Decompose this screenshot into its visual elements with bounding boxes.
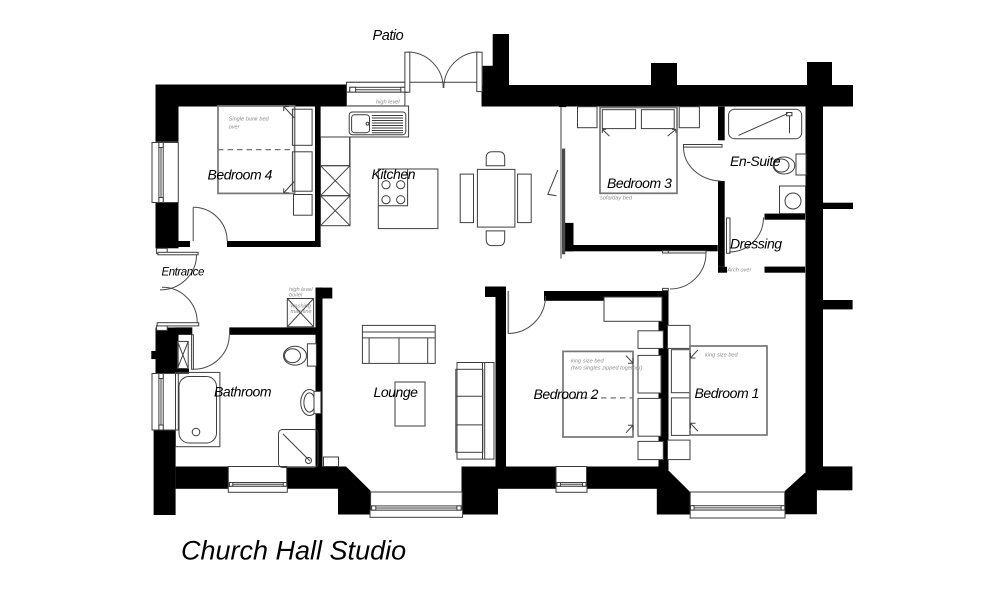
svg-text:Dressing: Dressing: [730, 236, 782, 252]
svg-text:king size bed: king size bed: [571, 359, 605, 365]
svg-text:over: over: [229, 125, 241, 131]
svg-text:Patio: Patio: [373, 28, 404, 44]
svg-text:Entrance: Entrance: [162, 267, 204, 279]
svg-text:(two singles zipped together): (two singles zipped together): [571, 366, 643, 372]
svg-text:sofa/day bed: sofa/day bed: [600, 196, 633, 202]
svg-text:Bedroom 3: Bedroom 3: [607, 175, 672, 191]
svg-text:Kitchen: Kitchen: [372, 166, 416, 182]
svg-text:high level: high level: [376, 100, 400, 106]
svg-text:Bedroom 2: Bedroom 2: [534, 386, 599, 402]
svg-text:En-Suite: En-Suite: [730, 153, 781, 169]
svg-text:boiler: boiler: [289, 293, 304, 299]
svg-text:Single bunk bed: Single bunk bed: [229, 117, 270, 123]
svg-text:Church Hall Studio: Church Hall Studio: [181, 535, 406, 565]
svg-text:king size bed: king size bed: [705, 353, 739, 359]
svg-text:Arch over: Arch over: [726, 267, 752, 273]
svg-text:Bathroom: Bathroom: [214, 384, 272, 400]
svg-text:machine: machine: [291, 309, 312, 315]
svg-text:Bedroom 4: Bedroom 4: [208, 167, 273, 183]
svg-text:Lounge: Lounge: [374, 384, 419, 400]
svg-text:Bedroom 1: Bedroom 1: [695, 385, 759, 401]
